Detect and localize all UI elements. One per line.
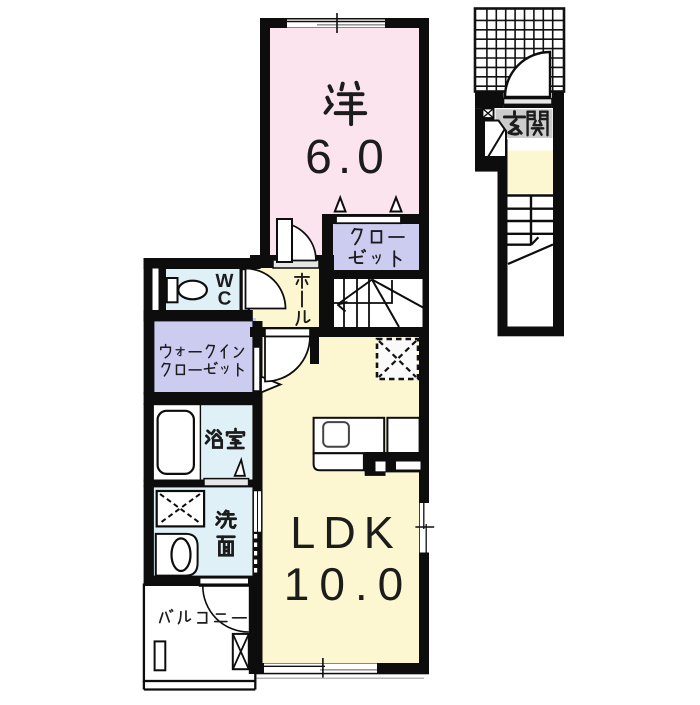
svg-text:10.0: 10.0: [284, 558, 414, 610]
svg-text:C: C: [218, 289, 232, 310]
svg-text:LDK: LDK: [290, 507, 402, 558]
svg-text:6.0: 6.0: [305, 131, 390, 184]
